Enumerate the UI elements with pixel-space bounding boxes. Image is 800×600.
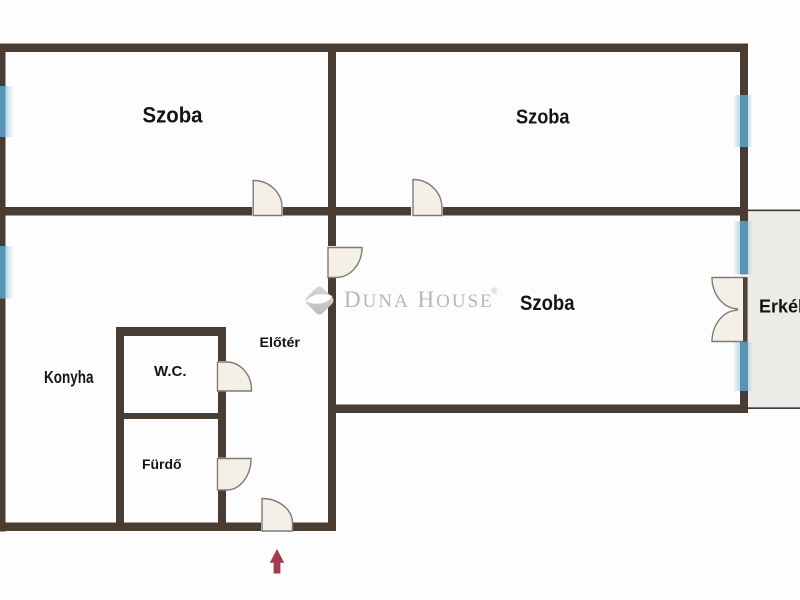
svg-text:Szoba: Szoba bbox=[520, 292, 575, 315]
svg-text:Konyha: Konyha bbox=[44, 367, 94, 387]
svg-text:DUNA HOUSE: DUNA HOUSE bbox=[344, 287, 494, 312]
svg-text:Erkély: Erkély bbox=[759, 297, 800, 317]
svg-text:Szoba: Szoba bbox=[143, 103, 203, 128]
svg-text:W.C.: W.C. bbox=[154, 363, 187, 380]
svg-text:Előtér: Előtér bbox=[260, 334, 301, 350]
svg-text:®: ® bbox=[491, 286, 498, 296]
svg-text:Szoba: Szoba bbox=[516, 106, 570, 129]
svg-text:Fürdő: Fürdő bbox=[142, 457, 182, 472]
